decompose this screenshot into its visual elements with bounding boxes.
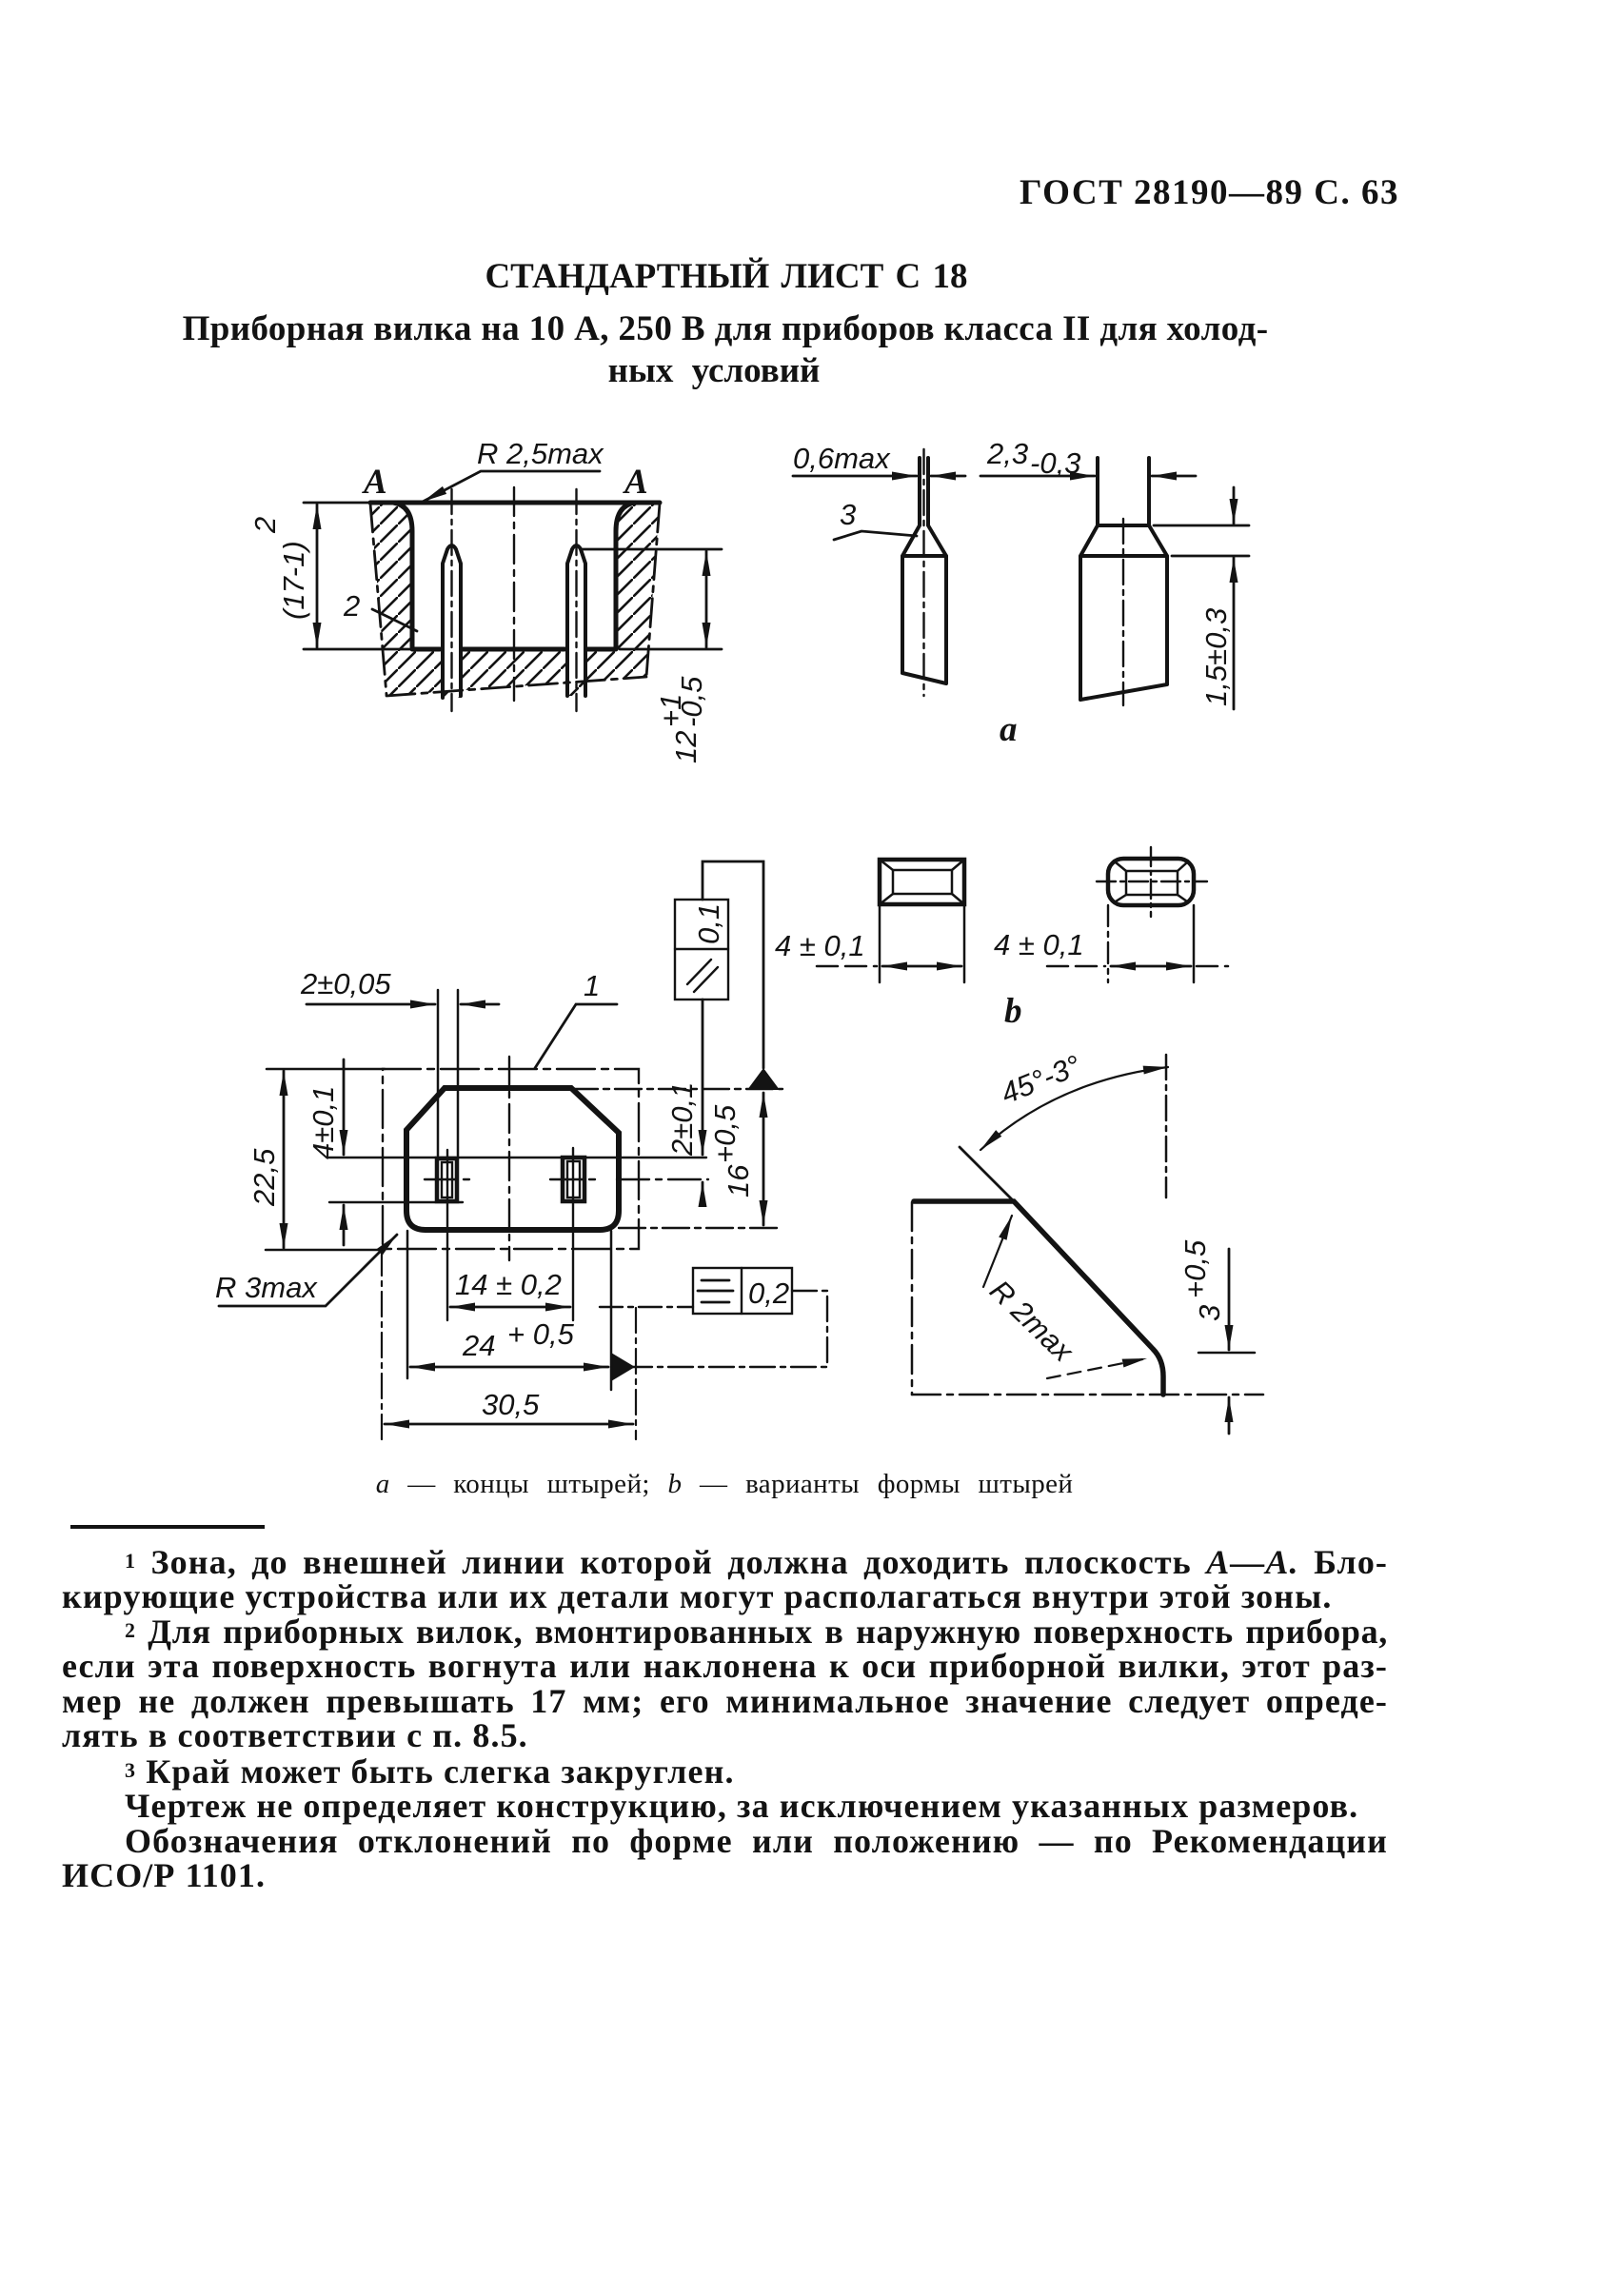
- svg-text:2,3: 2,3: [986, 437, 1028, 470]
- svg-text:R 2max: R 2max: [983, 1274, 1080, 1369]
- svg-text:A: A: [362, 463, 387, 502]
- svg-text:A: A: [623, 463, 648, 502]
- svg-text:14 ± 0,2: 14 ± 0,2: [455, 1268, 562, 1301]
- svg-text:a: a: [1000, 710, 1018, 749]
- svg-text:0,1: 0,1: [692, 903, 725, 944]
- svg-text:24: 24: [462, 1329, 495, 1362]
- svg-text:2: 2: [248, 517, 282, 534]
- svg-text:3: 3: [1193, 1305, 1226, 1321]
- svg-text:4±0,1: 4±0,1: [307, 1086, 340, 1159]
- svg-text:0,2: 0,2: [748, 1277, 789, 1310]
- svg-text:2±0,05: 2±0,05: [300, 967, 391, 1000]
- svg-text:2: 2: [343, 589, 360, 623]
- svg-text:b: b: [1004, 992, 1022, 1031]
- svg-text:R 2,5max: R 2,5max: [477, 437, 604, 470]
- svg-text:(17-1): (17-1): [277, 541, 310, 620]
- svg-text:+ 0,5: + 0,5: [507, 1317, 575, 1351]
- svg-text:16: 16: [722, 1164, 755, 1197]
- svg-text:1: 1: [584, 969, 600, 1002]
- svg-text:45°-3°: 45°-3°: [997, 1049, 1086, 1111]
- svg-text:2±0,1: 2±0,1: [665, 1082, 699, 1157]
- svg-text:R 3max: R 3max: [215, 1271, 318, 1304]
- svg-text:4 ± 0,1: 4 ± 0,1: [994, 928, 1084, 961]
- svg-text:4 ± 0,1: 4 ± 0,1: [775, 929, 865, 962]
- svg-text:+0,5: +0,5: [1178, 1239, 1212, 1298]
- svg-text:1,5±0,3: 1,5±0,3: [1199, 608, 1233, 706]
- svg-text:+0,5: +0,5: [708, 1104, 742, 1163]
- svg-text:30,5: 30,5: [482, 1388, 540, 1421]
- svg-text:-0,5: -0,5: [675, 676, 708, 727]
- svg-text:0,6max: 0,6max: [793, 442, 891, 475]
- svg-text:3: 3: [840, 498, 856, 531]
- svg-text:22,5: 22,5: [248, 1148, 281, 1207]
- svg-text:12: 12: [669, 731, 703, 763]
